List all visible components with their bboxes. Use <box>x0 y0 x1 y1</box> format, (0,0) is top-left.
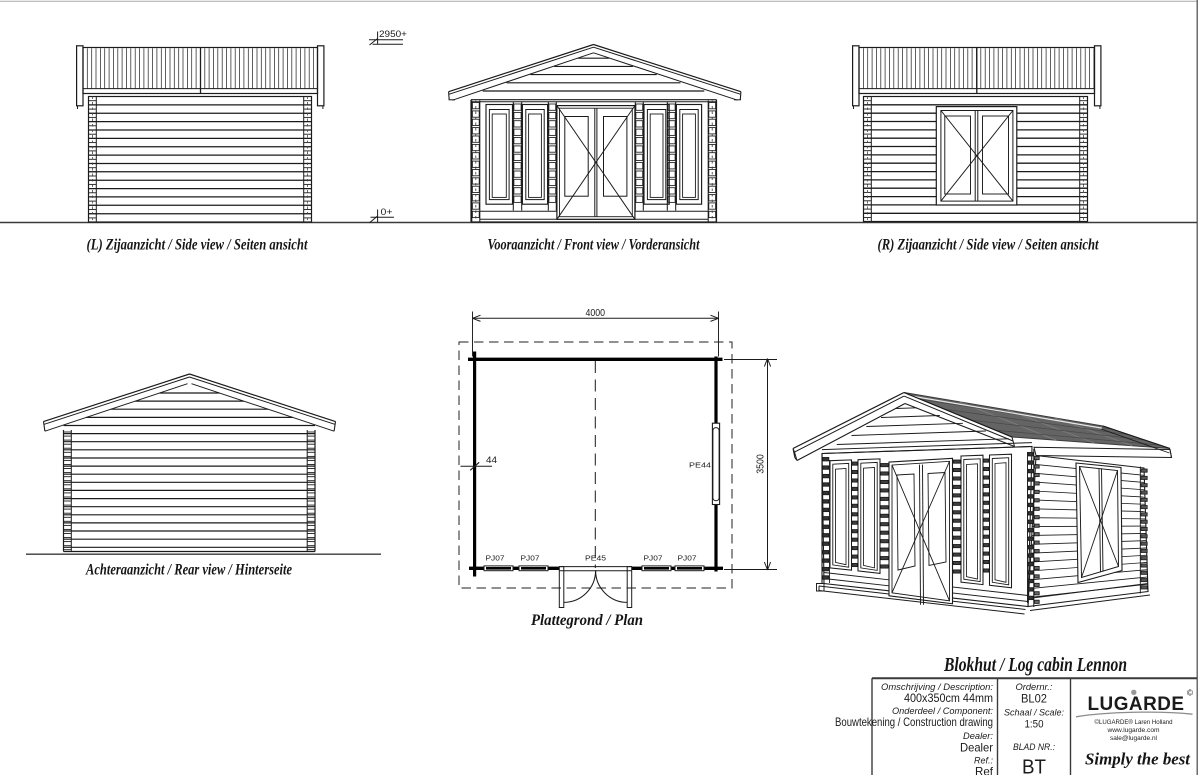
svg-text:BT: BT <box>1022 756 1046 775</box>
svg-text:www.lugarde.com: www.lugarde.com <box>1106 727 1159 734</box>
svg-text:4000: 4000 <box>586 308 606 319</box>
svg-text:Bouwtekening / Construction dr: Bouwtekening / Construction drawing <box>835 715 993 729</box>
svg-text:400x350cm 44mm: 400x350cm 44mm <box>904 691 993 705</box>
svg-text:(L) Zijaanzicht / Side view /: (L) Zijaanzicht / Side view / Seiten ans… <box>87 237 309 254</box>
svg-text:3500: 3500 <box>756 454 767 474</box>
svg-text:2950+: 2950+ <box>379 29 407 40</box>
svg-text:BLAD NR.:: BLAD NR.: <box>1013 742 1055 752</box>
svg-text:Vooraanzicht / Front view / Vo: Vooraanzicht / Front view / Vorderansich… <box>488 237 701 254</box>
svg-text:Achteraanzicht / Rear view / H: Achteraanzicht / Rear view / Hinterseite <box>85 562 292 579</box>
svg-text:PE45: PE45 <box>585 554 606 563</box>
svg-text:©LUGARDE® Laren Holland: ©LUGARDE® Laren Holland <box>1095 718 1173 726</box>
svg-text:PE44: PE44 <box>689 460 711 469</box>
svg-text:sale@lugarde.nl: sale@lugarde.nl <box>1110 735 1157 742</box>
svg-text:PJ07: PJ07 <box>486 554 505 563</box>
svg-text:Dealer: Dealer <box>960 740 993 754</box>
svg-text:1:50: 1:50 <box>1025 719 1044 731</box>
svg-text:Schaal / Scale:: Schaal / Scale: <box>1004 708 1064 718</box>
svg-text:0+: 0+ <box>381 207 393 218</box>
svg-text:44: 44 <box>486 455 497 465</box>
svg-text:PJ07: PJ07 <box>644 554 663 563</box>
svg-text:Simply the best: Simply the best <box>1085 750 1191 769</box>
svg-text:(R) Zijaanzicht / Side view /: (R) Zijaanzicht / Side view / Seiten ans… <box>878 237 1100 254</box>
svg-text:Plattegrond / Plan: Plattegrond / Plan <box>531 612 643 629</box>
svg-text:Ref: Ref <box>975 764 994 775</box>
svg-text:PJ07: PJ07 <box>521 554 540 563</box>
svg-text:©: © <box>1187 688 1194 698</box>
svg-text:Blokhut / Log cabin Lennon: Blokhut / Log cabin Lennon <box>943 654 1127 676</box>
svg-text:PJ07: PJ07 <box>678 554 697 563</box>
svg-text:BL02: BL02 <box>1021 691 1047 705</box>
